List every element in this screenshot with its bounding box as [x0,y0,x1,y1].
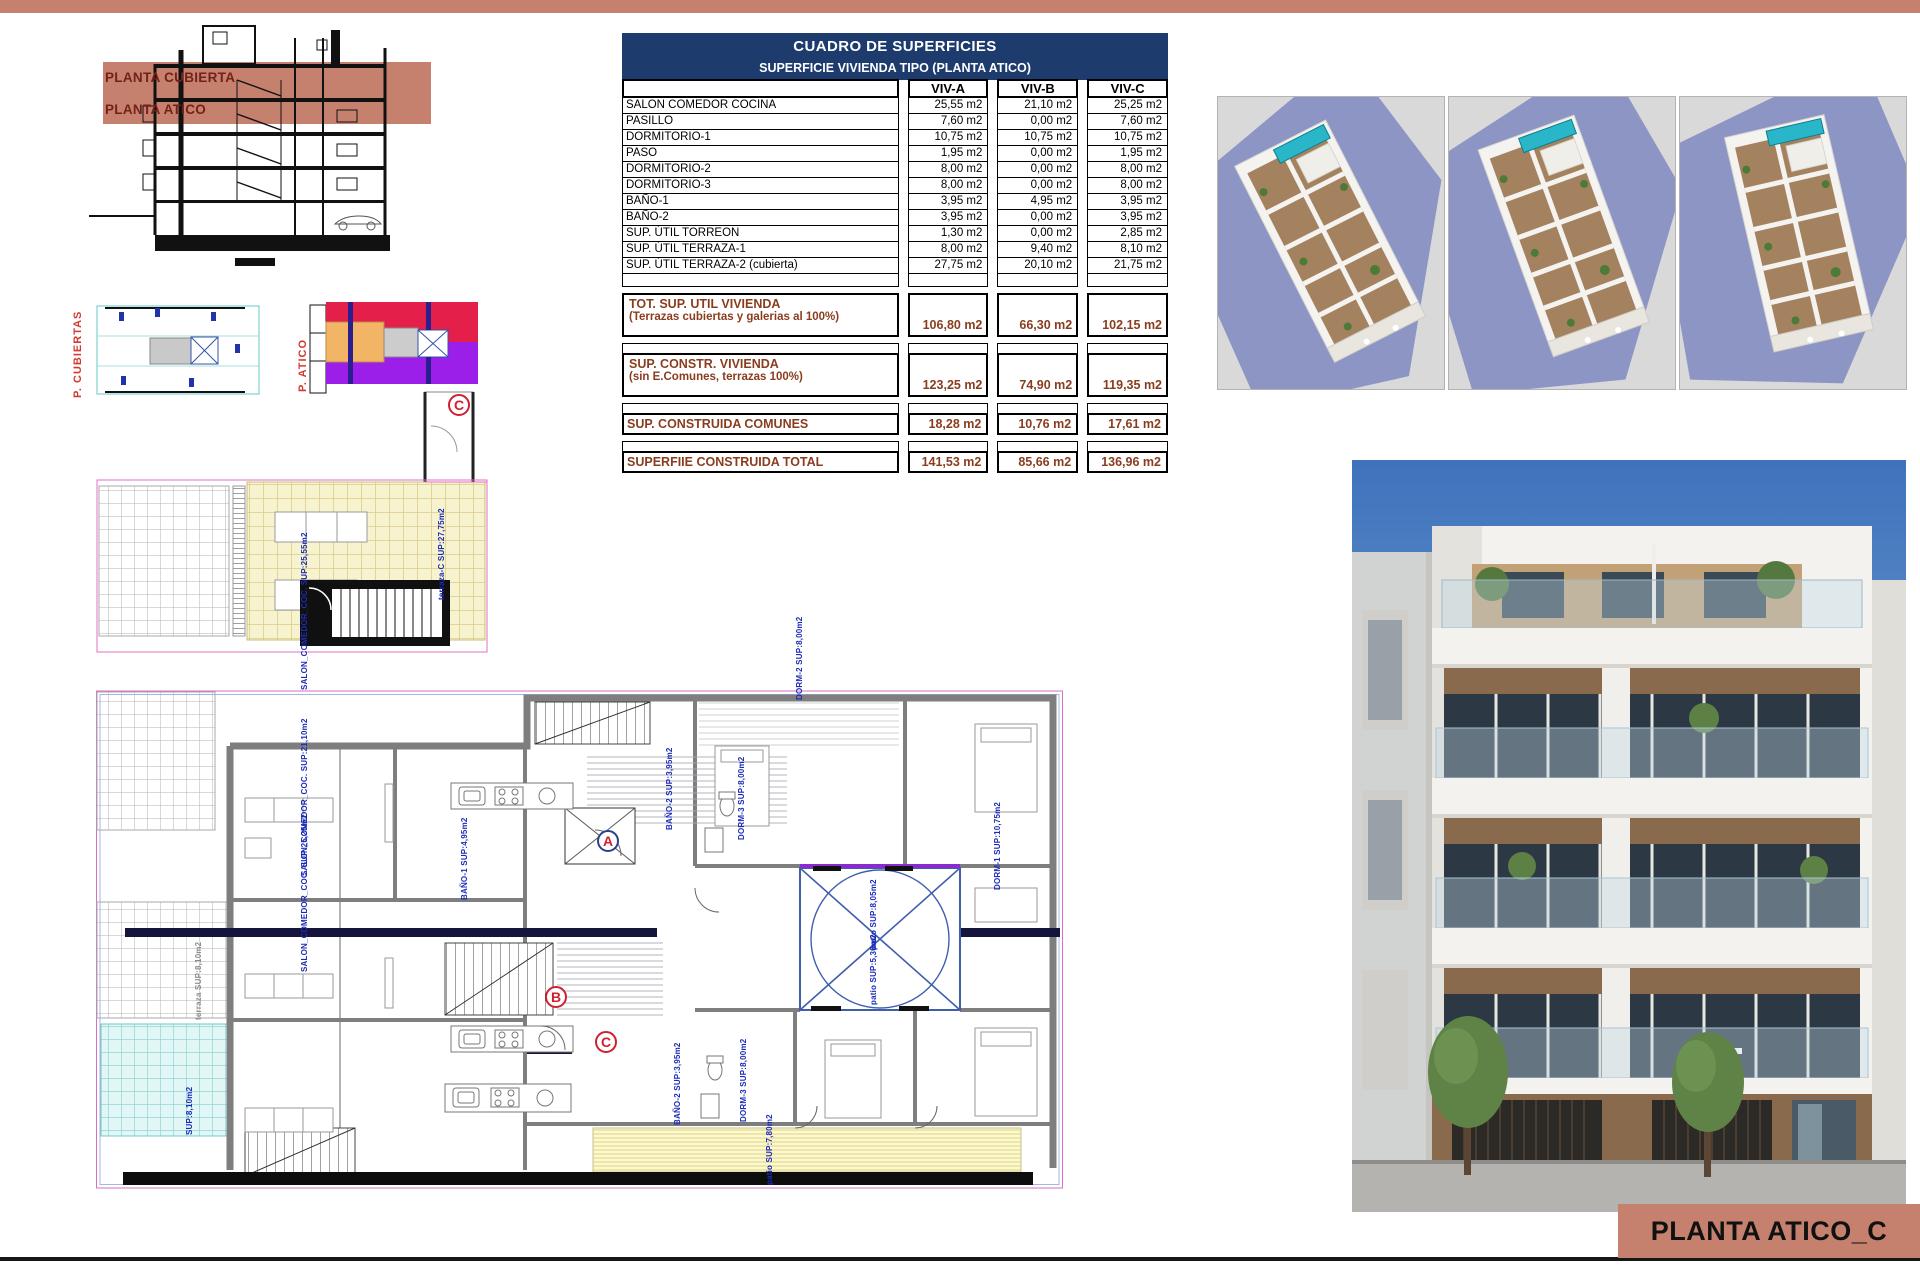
plan-marker-b: B [545,986,567,1008]
label-dorm1: DORM-1 SUP:10,75m2 [993,802,1002,890]
summary-comunes: SUP. CONSTRUIDA COMUNES 18,28 m2 10,76 m… [622,413,1168,435]
plan-marker-a: A [597,830,619,852]
table-row: BAÑO-1 3,95 m2 4,95 m2 3,95 m2 [622,193,1168,210]
row-viv-c: 1,95 m2 [1087,145,1168,162]
aerial-render-2 [1448,96,1676,390]
row-viv-c: 25,25 m2 [1087,97,1168,114]
row-label: SALON COMEDOR COCINA [622,97,899,114]
table-row: BAÑO-2 3,95 m2 0,00 m2 3,95 m2 [622,209,1168,226]
row-viv-a: 10,75 m2 [908,129,989,146]
row-label: BAÑO-1 [622,193,899,210]
row-viv-b: 4,95 m2 [997,193,1078,210]
areas-table: CUADRO DE SUPERFICIES SUPERFICIE VIVIEND… [622,33,1168,473]
row-viv-a: 8,00 m2 [908,241,989,258]
row-viv-c: 3,95 m2 [1087,209,1168,226]
row-viv-c: 8,10 m2 [1087,241,1168,258]
col-viv-c: VIV-C [1087,79,1168,98]
table-body: SALON COMEDOR COCINA 25,55 m2 21,10 m2 2… [622,97,1168,274]
row-viv-a: 7,60 m2 [908,113,989,130]
band-label-planta-atico: PLANTA ATICO [105,102,206,117]
col-viv-a: VIV-A [908,79,989,98]
row-label: SUP. ÚTIL TERRAZA-2 (cubierta) [622,257,899,274]
row-viv-c: 2,85 m2 [1087,225,1168,242]
label-bano2: BAÑO-2 SUP:3,95m2 [665,747,674,830]
mini-stairwell [191,337,218,364]
summary-construida-total: SUPERFIIE CONSTRUIDA TOTAL 141,53 m2 85,… [622,451,1168,473]
row-label: DORMITORIO-3 [622,177,899,194]
label-patio-2: patio SUP:5,30m2 [869,934,878,1005]
main-floor-plan [95,688,1070,1193]
row-label: PASO [622,145,899,162]
table-title: CUADRO DE SUPERFICIES [622,33,1168,60]
label-bano2-c: BAÑO-2 SUP:3,95m2 [673,1042,682,1125]
car-glyph [335,216,381,230]
label-terraza-gray: terraza SUP:8,10m2 [194,942,203,1020]
row-viv-b: 10,75 m2 [997,129,1078,146]
row-viv-b: 0,00 m2 [997,113,1078,130]
facade-render [1352,460,1906,1212]
row-viv-b: 0,00 m2 [997,225,1078,242]
row-label: DORMITORIO-2 [622,161,899,178]
row-viv-b: 0,00 m2 [997,161,1078,178]
yellow-gallery [593,1128,1021,1172]
roof-terrace-label: terraza-C SUP:27,75m2 [437,508,446,600]
aerial-render-3 [1679,96,1907,390]
roof-stairs [300,580,450,646]
label-dorm3-c: DORM-3 SUP:8,00m2 [739,1039,748,1122]
row-viv-c: 8,00 m2 [1087,161,1168,178]
row-viv-b: 0,00 m2 [997,145,1078,162]
row-label: SUP. ÚTIL TORREON [622,225,899,242]
aerial-render-1 [1217,96,1445,390]
mini-plan-cubiertas [95,300,265,400]
table-row: PASO 1,95 m2 0,00 m2 1,95 m2 [622,145,1168,162]
row-label: SUP. ÚTIL TERRAZA-1 [622,241,899,258]
section-drawing [85,20,435,292]
row-viv-c: 8,00 m2 [1087,177,1168,194]
label-terraza-cyan: SUP:8,10m2 [185,1087,194,1135]
section-view: PLANTA CUBIERTA PLANTA ATICO [85,20,435,292]
sheet-title-box: PLANTA ATICO_C [1618,1204,1920,1258]
table-row: SUP. ÚTIL TERRAZA-2 (cubierta) 27,75 m2 … [622,257,1168,274]
table-empty-row [622,273,1168,287]
label-gallery: patio SUP:7,80m2 [765,1114,774,1185]
table-row: DORMITORIO-2 8,00 m2 0,00 m2 8,00 m2 [622,161,1168,178]
mini-stairwell-2 [418,330,448,357]
roof-marker-c: C [448,394,470,416]
row-viv-c: 7,60 m2 [1087,113,1168,130]
summary-constr-vivienda: SUP. CONSTR. VIVIENDA (sin E.Comunes, te… [622,353,1168,397]
mini-zone-orange [326,322,384,362]
row-viv-a: 3,95 m2 [908,209,989,226]
terrace-left-white [97,902,229,1018]
row-viv-a: 8,00 m2 [908,177,989,194]
table-row: DORMITORIO-1 10,75 m2 10,75 m2 10,75 m2 [622,129,1168,146]
row-viv-a: 3,95 m2 [908,193,989,210]
plan-sheet: PLANTA CUBIERTA PLANTA ATICO P. CUBIERTA… [0,0,1920,1280]
table-row: SUP. ÚTIL TERRAZA-1 8,00 m2 9,40 m2 8,10… [622,241,1168,258]
row-viv-a: 8,00 m2 [908,161,989,178]
aerial-renders [1217,96,1907,390]
table-row: SALON COMEDOR COCINA 25,55 m2 21,10 m2 2… [622,97,1168,114]
label-dorm2: DORM-2 SUP:8,00m2 [795,617,804,700]
terrace-left-cyan [101,1024,229,1136]
roof-terrace-plan [95,386,495,658]
row-viv-a: 27,75 m2 [908,257,989,274]
summary-total-util: TOT. SUP. UTIL VIVIENDA (Terrazas cubier… [622,293,1168,337]
row-label: DORMITORIO-1 [622,129,899,146]
row-viv-b: 20,10 m2 [997,257,1078,274]
terrace-top-left [97,692,215,830]
label-dorm3: DORM-3 SUP:8,00m2 [737,757,746,840]
col-viv-b: VIV-B [997,79,1078,98]
bath-fixtures [701,792,735,1118]
neighbor-building [1352,552,1432,1212]
row-viv-b: 0,00 m2 [997,209,1078,226]
table-row: PASILLO 7,60 m2 0,00 m2 7,60 m2 [622,113,1168,130]
row-viv-c: 3,95 m2 [1087,193,1168,210]
row-viv-a: 1,95 m2 [908,145,989,162]
row-viv-a: 25,55 m2 [908,97,989,114]
white-tile-terrace [99,486,229,636]
row-viv-c: 21,75 m2 [1087,257,1168,274]
row-viv-b: 21,10 m2 [997,97,1078,114]
row-viv-b: 9,40 m2 [997,241,1078,258]
patio-lightwell [800,864,960,1011]
table-row: SUP. ÚTIL TORREON 1,30 m2 0,00 m2 2,85 m… [622,225,1168,242]
plan-marker-c: C [595,1031,617,1053]
top-accent-bar [0,0,1920,13]
row-viv-a: 1,30 m2 [908,225,989,242]
row-viv-b: 0,00 m2 [997,177,1078,194]
label-salon-a: SALON_COMEDOR_COC. SUP:25,55m2 [300,532,309,690]
table-subtitle: SUPERFICIE VIVIENDA TIPO (PLANTA ATICO) [622,60,1168,80]
band-label-planta-cubierta: PLANTA CUBIERTA [105,70,235,85]
label-salon-c: SALON_COMEDOR_COC. SUP:25,25m2 [300,814,309,972]
row-label: BAÑO-2 [622,209,899,226]
mini-plan-cubiertas-label: P. CUBIERTAS [72,311,84,398]
row-viv-c: 10,75 m2 [1087,129,1168,146]
label-bano1: BAÑO-1 SUP:4,95m2 [460,817,469,900]
table-column-header: VIV-A VIV-B VIV-C [622,79,1168,98]
table-row: DORMITORIO-3 8,00 m2 0,00 m2 8,00 m2 [622,177,1168,194]
row-label: PASILLO [622,113,899,130]
